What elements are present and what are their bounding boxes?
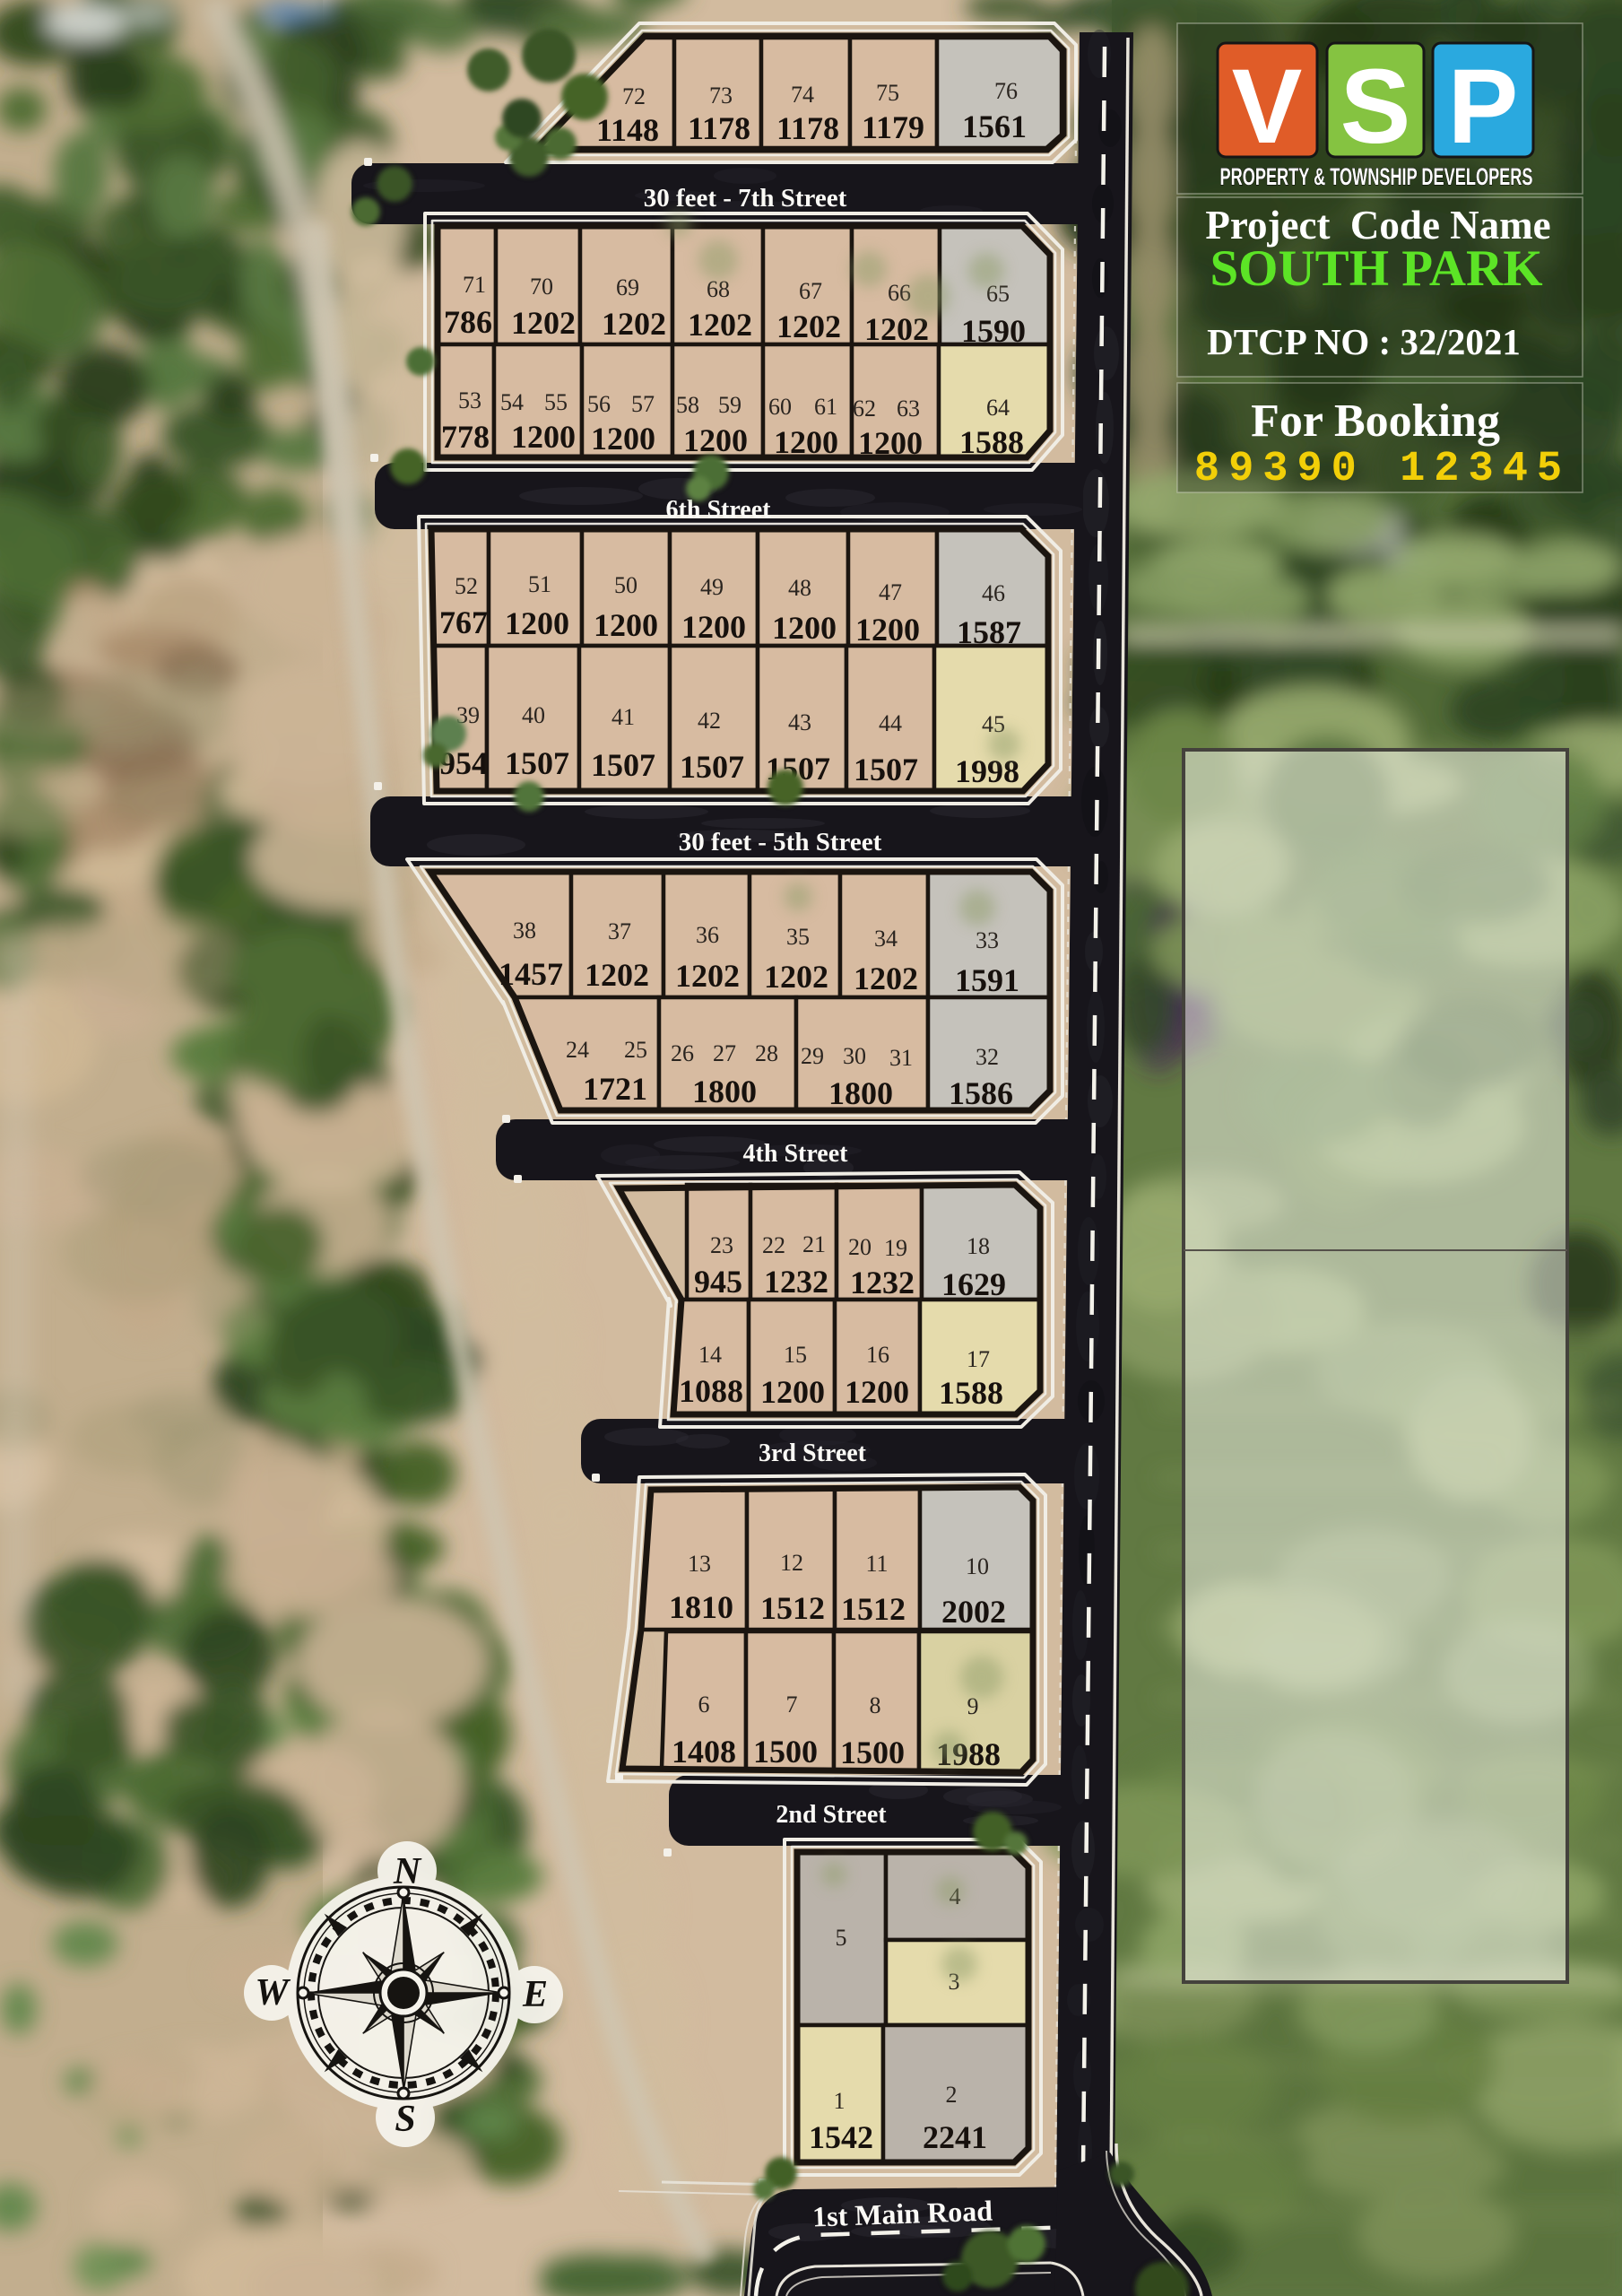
svg-text:15: 15: [784, 1342, 807, 1368]
svg-text:767: 767: [439, 604, 488, 640]
svg-text:1810: 1810: [669, 1589, 733, 1625]
svg-text:16: 16: [866, 1342, 889, 1368]
svg-text:18: 18: [967, 1233, 990, 1259]
svg-text:1588: 1588: [939, 1375, 1003, 1411]
svg-text:1202: 1202: [602, 306, 666, 342]
svg-text:1200: 1200: [591, 421, 655, 457]
svg-text:22: 22: [762, 1232, 785, 1258]
svg-text:1178: 1178: [688, 110, 750, 146]
svg-text:1591: 1591: [955, 962, 1019, 998]
svg-text:8: 8: [870, 1692, 881, 1718]
svg-text:1148: 1148: [596, 112, 659, 148]
svg-text:74: 74: [791, 82, 814, 108]
svg-text:35: 35: [786, 924, 810, 950]
svg-text:1800: 1800: [692, 1074, 757, 1109]
svg-text:1507: 1507: [591, 747, 655, 783]
svg-text:49: 49: [700, 574, 724, 600]
svg-text:60: 60: [768, 394, 792, 420]
svg-text:25: 25: [624, 1037, 647, 1063]
svg-text:50: 50: [614, 572, 638, 598]
svg-text:1542: 1542: [809, 2119, 873, 2155]
svg-text:W: W: [255, 1972, 291, 2013]
svg-text:61: 61: [814, 394, 837, 420]
svg-text:58: 58: [676, 392, 699, 418]
svg-text:51: 51: [528, 571, 551, 597]
svg-text:26: 26: [671, 1040, 694, 1066]
svg-text:27: 27: [713, 1040, 736, 1066]
svg-text:1202: 1202: [585, 957, 649, 993]
svg-text:1500: 1500: [753, 1734, 818, 1770]
svg-text:47: 47: [879, 579, 902, 605]
svg-text:PROPERTY & TOWNSHIP DEVELOPERS: PROPERTY & TOWNSHIP DEVELOPERS: [1220, 163, 1533, 190]
svg-text:1200: 1200: [772, 610, 837, 646]
svg-text:56: 56: [587, 391, 611, 417]
svg-text:2002: 2002: [941, 1594, 1006, 1630]
svg-text:1200: 1200: [594, 607, 658, 643]
svg-text:72: 72: [622, 83, 646, 109]
svg-text:19: 19: [884, 1235, 907, 1261]
svg-text:1202: 1202: [854, 961, 918, 996]
svg-text:1408: 1408: [672, 1734, 736, 1770]
svg-text:V: V: [1232, 48, 1303, 166]
svg-text:786: 786: [444, 304, 492, 340]
svg-text:30 feet - 5th Street: 30 feet - 5th Street: [679, 828, 882, 857]
svg-text:S: S: [1340, 48, 1411, 166]
svg-text:N: N: [393, 1851, 422, 1892]
svg-text:54: 54: [500, 389, 524, 415]
svg-text:1561: 1561: [962, 109, 1027, 144]
svg-text:69: 69: [616, 274, 639, 300]
svg-text:44: 44: [879, 710, 902, 736]
svg-text:48: 48: [788, 575, 811, 601]
svg-text:57: 57: [631, 391, 655, 417]
svg-text:1500: 1500: [840, 1735, 905, 1770]
svg-text:37: 37: [608, 918, 631, 944]
svg-text:40: 40: [522, 702, 545, 728]
svg-text:42: 42: [698, 708, 721, 734]
svg-text:55: 55: [544, 389, 568, 415]
svg-text:E: E: [522, 1974, 548, 2015]
svg-text:1629: 1629: [941, 1266, 1006, 1302]
svg-text:14: 14: [698, 1342, 722, 1368]
svg-text:1: 1: [834, 2088, 846, 2114]
svg-text:1200: 1200: [855, 612, 920, 648]
svg-text:2241: 2241: [923, 2119, 987, 2155]
svg-text:43: 43: [788, 709, 811, 735]
svg-text:1202: 1202: [864, 311, 929, 347]
svg-text:6th Street: 6th Street: [666, 496, 772, 524]
svg-text:38: 38: [513, 918, 536, 944]
svg-text:89390 12345: 89390 12345: [1194, 446, 1571, 493]
svg-text:73: 73: [709, 83, 733, 109]
svg-text:20: 20: [848, 1234, 872, 1260]
svg-text:1200: 1200: [683, 422, 748, 458]
svg-text:5: 5: [836, 1925, 847, 1951]
svg-text:52: 52: [455, 573, 478, 599]
svg-text:945: 945: [694, 1264, 742, 1300]
svg-text:1512: 1512: [760, 1590, 825, 1626]
svg-text:2: 2: [946, 2082, 958, 2108]
svg-text:32: 32: [976, 1044, 999, 1070]
svg-text:1179: 1179: [862, 109, 924, 145]
svg-text:31: 31: [889, 1045, 913, 1071]
svg-text:30: 30: [843, 1043, 866, 1069]
svg-text:68: 68: [707, 276, 730, 302]
svg-text:10: 10: [966, 1553, 989, 1579]
svg-text:1800: 1800: [828, 1075, 893, 1111]
svg-text:1202: 1202: [764, 959, 828, 995]
svg-text:1512: 1512: [841, 1591, 906, 1627]
svg-text:1st Main Road: 1st Main Road: [811, 2195, 993, 2233]
svg-text:1202: 1202: [776, 309, 841, 344]
svg-text:75: 75: [876, 80, 899, 106]
svg-text:1202: 1202: [688, 307, 752, 343]
svg-text:1200: 1200: [845, 1374, 909, 1410]
svg-text:3rd Street: 3rd Street: [759, 1439, 867, 1467]
svg-text:67: 67: [799, 278, 822, 304]
svg-text:24: 24: [566, 1037, 589, 1063]
svg-text:1721: 1721: [583, 1071, 647, 1107]
svg-text:P: P: [1448, 48, 1519, 166]
svg-text:59: 59: [718, 392, 742, 418]
svg-text:62: 62: [853, 396, 876, 422]
svg-text:34: 34: [874, 926, 898, 952]
svg-text:28: 28: [755, 1040, 778, 1066]
svg-text:1232: 1232: [850, 1265, 915, 1300]
svg-text:S: S: [395, 2099, 415, 2140]
svg-text:1232: 1232: [764, 1264, 828, 1300]
svg-text:7: 7: [786, 1692, 798, 1718]
svg-text:1200: 1200: [760, 1374, 825, 1410]
svg-text:36: 36: [696, 922, 719, 948]
svg-text:1507: 1507: [505, 745, 569, 781]
svg-text:30 feet - 7th Street: 30 feet - 7th Street: [644, 184, 847, 213]
svg-text:1507: 1507: [854, 752, 918, 787]
svg-text:6: 6: [698, 1692, 710, 1718]
svg-text:1200: 1200: [511, 419, 576, 455]
svg-text:1586: 1586: [949, 1075, 1013, 1111]
svg-text:1178: 1178: [776, 110, 839, 146]
svg-text:For Booking: For Booking: [1251, 396, 1500, 447]
svg-text:1200: 1200: [681, 609, 746, 645]
svg-text:1202: 1202: [511, 305, 576, 341]
svg-text:17: 17: [967, 1346, 990, 1372]
svg-text:46: 46: [982, 580, 1005, 606]
svg-text:71: 71: [463, 272, 486, 298]
svg-text:1088: 1088: [679, 1373, 743, 1409]
svg-text:53: 53: [458, 387, 481, 413]
svg-text:2nd Street: 2nd Street: [776, 1801, 887, 1829]
svg-text:SOUTH PARK: SOUTH PARK: [1210, 240, 1542, 297]
svg-text:23: 23: [710, 1232, 733, 1258]
svg-text:29: 29: [801, 1043, 824, 1069]
svg-text:DTCP NO : 32/2021: DTCP NO : 32/2021: [1207, 321, 1521, 362]
svg-text:33: 33: [976, 927, 999, 953]
svg-text:4th Street: 4th Street: [743, 1140, 849, 1168]
svg-text:778: 778: [441, 419, 490, 455]
svg-text:13: 13: [688, 1551, 711, 1577]
svg-text:70: 70: [530, 274, 553, 300]
svg-text:64: 64: [986, 395, 1010, 421]
svg-text:12: 12: [780, 1550, 803, 1576]
svg-text:1202: 1202: [675, 958, 740, 994]
svg-text:1200: 1200: [505, 605, 569, 641]
svg-text:21: 21: [802, 1231, 826, 1257]
svg-text:41: 41: [612, 704, 635, 730]
svg-text:63: 63: [897, 396, 920, 422]
svg-text:76: 76: [994, 78, 1018, 104]
svg-text:11: 11: [865, 1551, 888, 1577]
svg-text:1507: 1507: [680, 749, 744, 785]
